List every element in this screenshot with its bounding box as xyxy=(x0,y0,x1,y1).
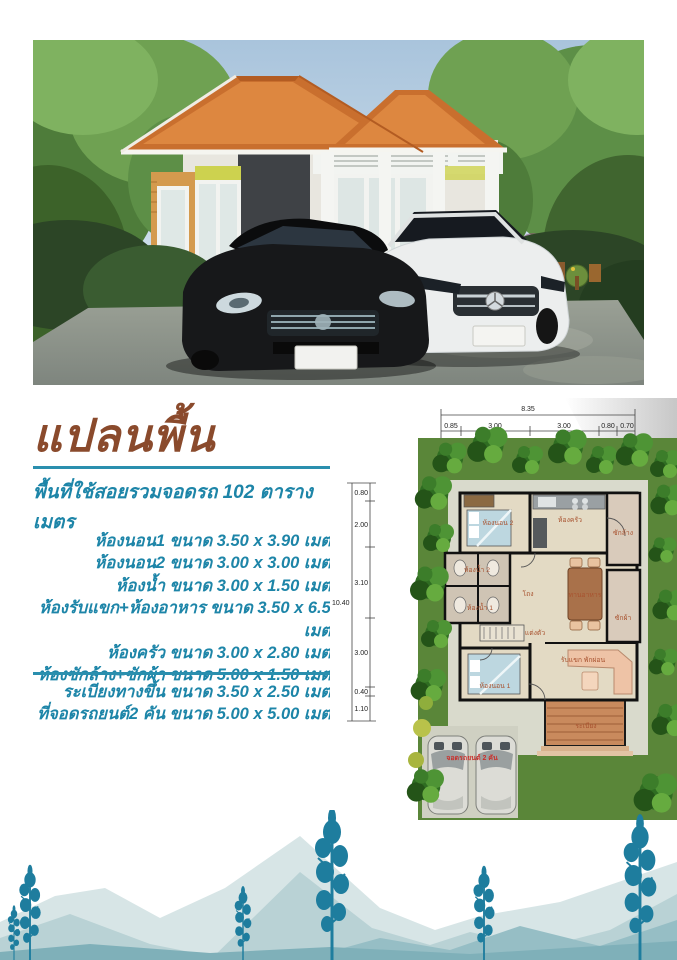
dim-total-width: 8.35 xyxy=(521,406,535,413)
dim-left-1: 0.80 xyxy=(354,490,368,497)
label-living: รับแขก พักผ่อน xyxy=(561,656,606,664)
label-bedroom1: ห้องนอน 1 xyxy=(480,682,511,690)
label-kitchen: ห้องครัว xyxy=(558,516,582,524)
rooms xyxy=(445,493,640,700)
label-laundry: ซักผ้า xyxy=(615,614,632,622)
page-subtitle: พื้นที่ใช้สอยรวมจอดรถ 102 ตารางเมตร xyxy=(33,477,340,537)
label-parking: จอดรถยนต์ 2 คัน xyxy=(446,753,498,762)
label-bedroom2: ห้องนอน 2 xyxy=(483,519,514,527)
label-dressing: แต่งตัว xyxy=(525,629,546,637)
extra-size-list: ระเบียงทางขึ้น ขนาด 3.50 x 2.50 เมตร ที่… xyxy=(33,681,340,726)
label-hall: โถง xyxy=(522,589,533,598)
section-divider xyxy=(33,672,340,675)
dim-left-5: 0.40 xyxy=(354,689,368,696)
dim-left-3: 3.10 xyxy=(354,580,368,587)
page-title: แปลนพื้น xyxy=(33,413,215,458)
title-underline xyxy=(33,466,340,469)
label-wash: ซักล้าง xyxy=(613,529,633,537)
extra-size-item: ระเบียงทางขึ้น ขนาด 3.50 x 2.50 เมตร xyxy=(33,681,340,703)
room-size-list: ห้องนอน1 ขนาด 3.50 x 3.90 เมตร ห้องนอน2 … xyxy=(33,530,340,687)
dim-top-4: 0.80 xyxy=(601,423,615,430)
room-size-item: ห้องน้ำ ขนาด 3.00 x 1.50 เมตร xyxy=(33,575,340,597)
dim-top-5: 0.70 xyxy=(620,423,634,430)
dim-left-4: 3.00 xyxy=(354,650,368,657)
dim-total-height: 10.40 xyxy=(332,600,350,607)
label-dining: ทานอาหาร xyxy=(569,592,602,599)
dim-left-6: 1.10 xyxy=(354,706,368,713)
dim-top-3: 3.00 xyxy=(557,423,571,430)
room-size-item: ห้องครัว ขนาด 3.00 x 2.80 เมตร xyxy=(33,642,340,664)
dim-left-2: 2.00 xyxy=(354,522,368,529)
brochure-page: แปลนพื้น พื้นที่ใช้สอยรวมจอดรถ 102 ตาราง… xyxy=(0,0,677,960)
room-size-item: ห้องรับแขก+ห้องอาหาร ขนาด 3.50 x 6.50 เม… xyxy=(33,597,340,642)
room-size-item: ห้องนอน1 ขนาด 3.50 x 3.90 เมตร xyxy=(33,530,340,552)
room-laundry xyxy=(607,570,640,642)
room-size-item: ห้องนอน2 ขนาด 3.00 x 3.00 เมตร xyxy=(33,552,340,574)
footer-decoration xyxy=(0,810,677,960)
dim-top-1: 0.85 xyxy=(444,423,458,430)
label-porch: ระเบียง xyxy=(575,722,596,730)
floor-plan: 8.35 0.85 3.00 3.00 0.80 0.70 10.40 0.80… xyxy=(330,398,677,822)
house-photo xyxy=(33,40,644,385)
extra-size-item: ที่จอดรถยนต์2 คัน ขนาด 5.00 x 5.00 เมตร xyxy=(33,703,340,725)
